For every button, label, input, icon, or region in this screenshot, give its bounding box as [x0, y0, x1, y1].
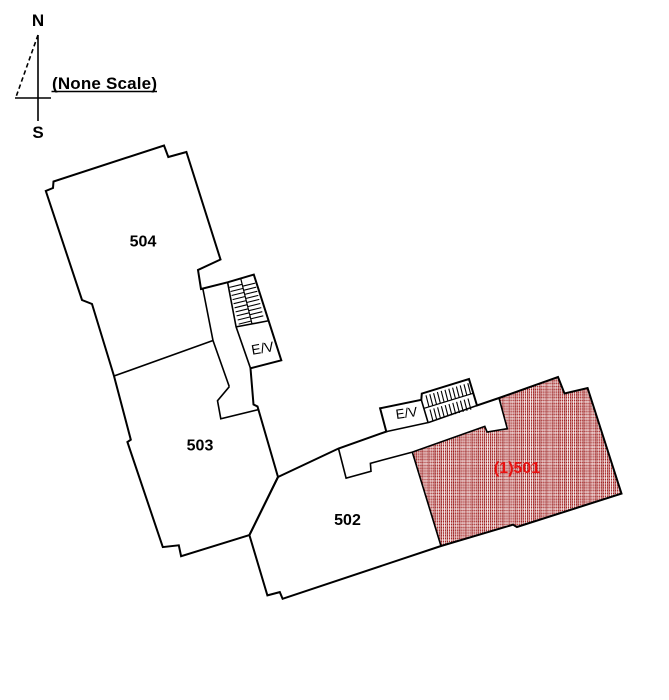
svg-text:S: S	[32, 123, 43, 142]
svg-text:504: 504	[130, 234, 157, 251]
svg-text:(1)501: (1)501	[494, 460, 540, 477]
svg-text:(None Scale): (None Scale)	[52, 74, 157, 93]
svg-text:N: N	[32, 11, 44, 30]
svg-text:503: 503	[187, 438, 214, 455]
svg-text:E/V: E/V	[395, 404, 419, 422]
svg-text:502: 502	[334, 512, 361, 529]
svg-text:E/V: E/V	[250, 338, 276, 358]
